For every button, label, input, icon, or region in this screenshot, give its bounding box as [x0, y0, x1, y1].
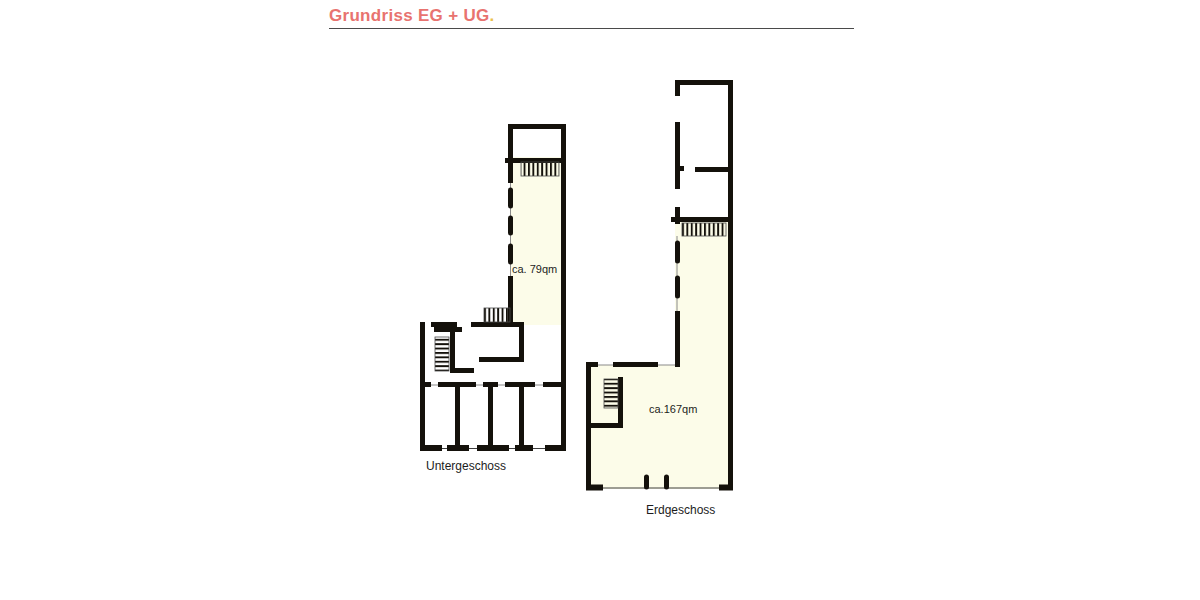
erdgeschoss-area-label: ca.167qm: [649, 403, 697, 415]
eg-side-stairs-icon: [604, 379, 618, 408]
ug-interior-room-walls: [479, 327, 524, 362]
eg-topbox-interior-wall: [675, 169, 731, 170]
ug-mid-stairs-icon: [484, 308, 510, 322]
eg-top-stairs-icon: [682, 223, 726, 236]
eg-corridor-room: [675, 222, 729, 366]
floorplan-canvas: ca. 79qm Untergeschoss ca.167qm Erdgesch…: [0, 0, 1200, 600]
ug-top-stairs-icon: [521, 162, 559, 176]
ug-side-stairs-icon: [435, 337, 449, 371]
untergeschoss-floorplan: ca. 79qm Untergeschoss: [420, 124, 566, 473]
untergeschoss-area-label: ca. 79qm: [512, 263, 557, 275]
untergeschoss-label: Untergeschoss: [426, 459, 506, 473]
erdgeschoss-floorplan: ca.167qm Erdgeschoss: [586, 80, 733, 517]
erdgeschoss-label: Erdgeschoss: [646, 503, 715, 517]
ug-room-partitions: [458, 387, 522, 446]
untergeschoss-corridor-room: [511, 157, 562, 325]
